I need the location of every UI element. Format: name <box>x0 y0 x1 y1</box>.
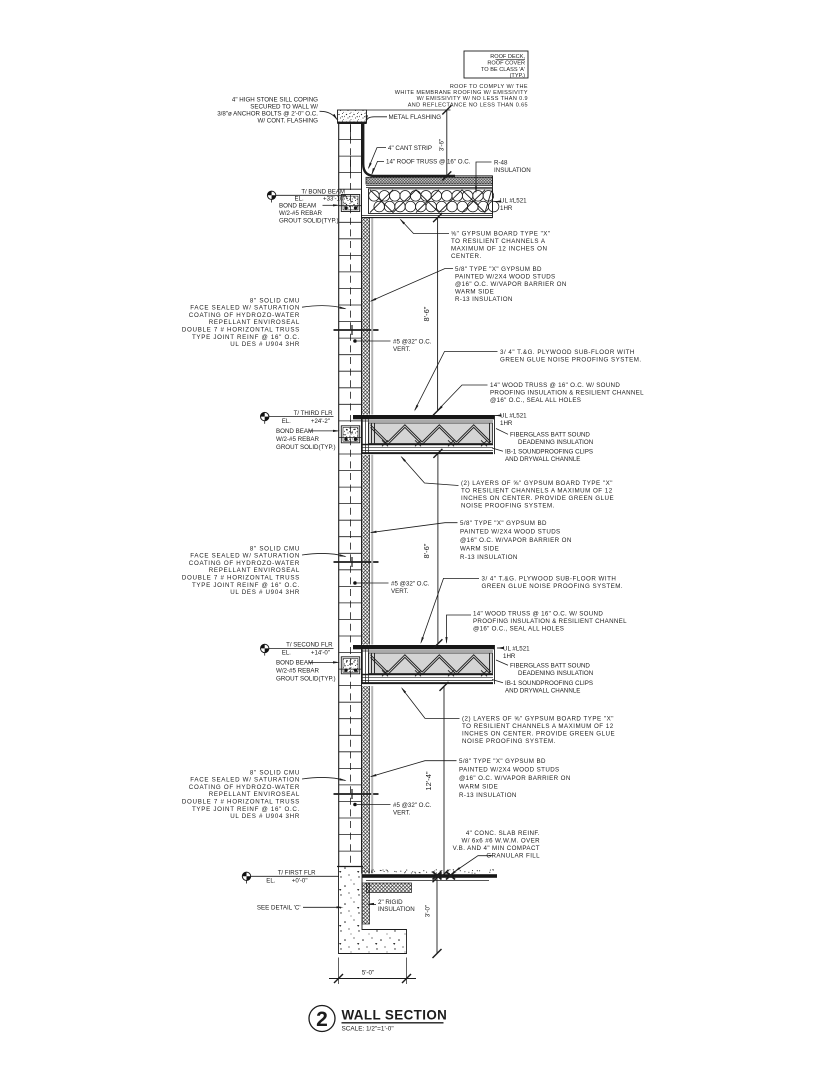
svg-text:WHITE MEMBRANE ROOFING W/ EMIS: WHITE MEMBRANE ROOFING W/ EMISSIVITY <box>395 90 528 96</box>
svg-text:DOUBLE 7 # HORIZONTAL TRUSS: DOUBLE 7 # HORIZONTAL TRUSS <box>182 799 300 806</box>
svg-text:@16" O.C., SEAL ALL HOLES: @16" O.C., SEAL ALL HOLES <box>473 625 564 632</box>
svg-text:ROOF COVER: ROOF COVER <box>487 61 525 67</box>
svg-text:DOUBLE 7 # HORIZONTAL TRUSS: DOUBLE 7 # HORIZONTAL TRUSS <box>182 575 300 582</box>
svg-text:FIBERGLASS BATT SOUND: FIBERGLASS BATT SOUND <box>510 663 590 670</box>
svg-text:AND DRYWALL CHANNLE: AND DRYWALL CHANNLE <box>505 456 580 463</box>
svg-text:5/8" TYPE "X" GYPSUM BD: 5/8" TYPE "X" GYPSUM BD <box>459 758 546 765</box>
svg-text:4" HIGH STONE SILL COPING: 4" HIGH STONE SILL COPING <box>232 97 318 104</box>
svg-text:#5 @32" O.C.: #5 @32" O.C. <box>391 580 430 587</box>
svg-text:VERT.: VERT. <box>393 346 411 353</box>
svg-text:GRANULAR FILL: GRANULAR FILL <box>486 853 540 860</box>
svg-text:IB-1 SOUNDPROOFING CLIPS: IB-1 SOUNDPROOFING CLIPS <box>505 680 593 687</box>
svg-text:T/ FIRST FLR: T/ FIRST FLR <box>278 870 316 877</box>
svg-text:WARM SIDE: WARM SIDE <box>460 546 499 553</box>
svg-text:UL #L521: UL #L521 <box>500 413 527 420</box>
svg-text:@16" O.C. W/VAPOR BARRIER ON: @16" O.C. W/VAPOR BARRIER ON <box>460 537 572 544</box>
svg-text:REPELLANT ENVIROSEAL: REPELLANT ENVIROSEAL <box>209 791 300 798</box>
svg-text:AND REFLECTANCE NO LESS THAN 0: AND REFLECTANCE NO LESS THAN 0.65 <box>408 102 528 108</box>
svg-text:FIBERGLASS BATT SOUND: FIBERGLASS BATT SOUND <box>510 432 590 439</box>
svg-text:14" WOOD TRUSS @ 16" O.C. W/ S: 14" WOOD TRUSS @ 16" O.C. W/ SOUND <box>473 610 603 617</box>
svg-text:BOND BEAM: BOND BEAM <box>276 428 313 435</box>
svg-text:(TYP.): (TYP.) <box>510 73 526 79</box>
svg-text:CENTER.: CENTER. <box>451 253 482 260</box>
svg-text:UL DES # U904 3HR: UL DES # U904 3HR <box>230 813 300 820</box>
svg-text:NOISE PROOFING SYSTEM.: NOISE PROOFING SYSTEM. <box>461 503 555 510</box>
svg-text:VERT.: VERT. <box>393 809 411 816</box>
svg-text:INSULATION: INSULATION <box>494 167 531 174</box>
svg-text:TYPE JOINT REINF @ 16" O.C.: TYPE JOINT REINF @ 16" O.C. <box>192 334 300 341</box>
svg-text:EL.: EL. <box>282 418 291 425</box>
svg-text:W/2-#5 REBAR: W/2-#5 REBAR <box>276 667 320 674</box>
svg-text:3/8"ø ANCHOR BOLTS @ 2'-0" O.C: 3/8"ø ANCHOR BOLTS @ 2'-0" O.C. <box>217 111 318 118</box>
svg-text:#5 @32" O.C.: #5 @32" O.C. <box>393 338 432 345</box>
svg-text:3'-0": 3'-0" <box>425 905 432 918</box>
svg-text:PROOFING INSULATION & RESILIEN: PROOFING INSULATION & RESILIENT CHANNEL <box>473 618 627 625</box>
svg-text:REPELLANT ENVIROSEAL: REPELLANT ENVIROSEAL <box>209 567 300 574</box>
svg-text:8" SOLID CMU: 8" SOLID CMU <box>250 769 300 776</box>
svg-text:AND DRYWALL CHANNLE: AND DRYWALL CHANNLE <box>505 688 580 695</box>
svg-text:PAINTED W/2X4 WOOD STUDS: PAINTED W/2X4 WOOD STUDS <box>459 767 560 774</box>
svg-text:TO RESILIENT CHANNELS A: TO RESILIENT CHANNELS A <box>451 238 546 245</box>
svg-text:SCALE: 1/2"=1'-0": SCALE: 1/2"=1'-0" <box>342 1026 394 1033</box>
svg-text:12'-4": 12'-4" <box>424 771 433 790</box>
svg-text:WARM SIDE: WARM SIDE <box>459 784 498 791</box>
svg-text:2: 2 <box>316 1008 328 1031</box>
svg-text:W/ EMISSIVITY W/ NO LESS THAN: W/ EMISSIVITY W/ NO LESS THAN 0.9 <box>417 96 528 102</box>
svg-text:8'-6": 8'-6" <box>422 306 431 321</box>
svg-text:UL DES # U904 3HR: UL DES # U904 3HR <box>230 589 300 596</box>
svg-text:GROUT SOLID(TYP.): GROUT SOLID(TYP.) <box>279 217 339 224</box>
svg-text:VERT.: VERT. <box>391 588 409 595</box>
svg-text:TYPE JOINT REINF @ 16" O.C.: TYPE JOINT REINF @ 16" O.C. <box>192 806 300 813</box>
svg-text:WALL SECTION: WALL SECTION <box>342 1008 448 1023</box>
svg-text:8" SOLID CMU: 8" SOLID CMU <box>250 297 300 304</box>
svg-text:BOND BEAM: BOND BEAM <box>279 203 316 210</box>
svg-text:3'-6": 3'-6" <box>439 139 446 152</box>
svg-text:DEADENING INSULATION: DEADENING INSULATION <box>518 670 593 677</box>
svg-text:8'-6": 8'-6" <box>422 543 431 558</box>
svg-text:EL.: EL. <box>282 650 291 657</box>
svg-text:UL #L521: UL #L521 <box>503 646 530 653</box>
svg-text:GREEN GLUE NOISE PROOFING SYST: GREEN GLUE NOISE PROOFING SYSTEM. <box>482 583 624 590</box>
svg-text:TO RESILIENT CHANNELS A MAXIMU: TO RESILIENT CHANNELS A MAXIMUM OF 12 <box>462 723 614 730</box>
svg-text:T/ THIRD FLR: T/ THIRD FLR <box>294 410 333 417</box>
svg-text:4" CANT STRIP: 4" CANT STRIP <box>388 145 432 152</box>
svg-text:DEADENING INSULATION: DEADENING INSULATION <box>518 439 593 446</box>
svg-text:NOISE PROOFING SYSTEM.: NOISE PROOFING SYSTEM. <box>462 738 556 745</box>
svg-text:3/ 4" T.&G. PLYWOOD SUB-FLOOR: 3/ 4" T.&G. PLYWOOD SUB-FLOOR WITH <box>482 576 617 583</box>
svg-text:COATING OF HYDROZO-WATER: COATING OF HYDROZO-WATER <box>189 560 300 567</box>
svg-text:BOND BEAM: BOND BEAM <box>276 660 313 667</box>
svg-text:@16" O.C., SEAL ALL HOLES: @16" O.C., SEAL ALL HOLES <box>490 397 581 404</box>
svg-text:W/2-#5 REBAR: W/2-#5 REBAR <box>276 436 320 443</box>
svg-text:FACE SEALED W/ SATURATION: FACE SEALED W/ SATURATION <box>190 777 300 784</box>
svg-text:+0'-0": +0'-0" <box>292 878 308 885</box>
svg-text:IB-1 SOUNDPROOFING CLIPS: IB-1 SOUNDPROOFING CLIPS <box>505 449 593 456</box>
svg-text:W/ 6x6 #6 W.W.M. OVER: W/ 6x6 #6 W.W.M. OVER <box>461 838 540 845</box>
svg-text:FACE SEALED W/ SATURATION: FACE SEALED W/ SATURATION <box>190 553 300 560</box>
svg-text:5/8" TYPE "X" GYPSUM BD: 5/8" TYPE "X" GYPSUM BD <box>455 266 542 273</box>
svg-text:TYPE JOINT REINF @ 16" O.C.: TYPE JOINT REINF @ 16" O.C. <box>192 582 300 589</box>
svg-text:+24'-2": +24'-2" <box>311 418 330 425</box>
svg-text:8" SOLID CMU: 8" SOLID CMU <box>250 545 300 552</box>
svg-text:5/8" TYPE "X" GYPSUM BD: 5/8" TYPE "X" GYPSUM BD <box>460 520 547 527</box>
svg-text:T/ SECOND FLR: T/ SECOND FLR <box>286 642 333 649</box>
svg-text:+14'-0": +14'-0" <box>311 650 330 657</box>
svg-text:⅝" GYPSUM BOARD TYPE "X": ⅝" GYPSUM BOARD TYPE "X" <box>451 231 551 238</box>
svg-text:WARM SIDE: WARM SIDE <box>455 289 494 296</box>
svg-text:GREEN GLUE NOISE PROOFING SYST: GREEN GLUE NOISE PROOFING SYSTEM. <box>500 356 642 363</box>
svg-text:+33'-10": +33'-10" <box>323 196 345 203</box>
svg-text:4" CONC. SLAB REINF.: 4" CONC. SLAB REINF. <box>466 830 540 837</box>
svg-text:PAINTED W/2X4 WOOD STUDS: PAINTED W/2X4 WOOD STUDS <box>455 273 556 280</box>
svg-text:UL #L521: UL #L521 <box>500 197 527 204</box>
svg-text:(2) LAYERS OF ⅝" GYPSUM BOARD: (2) LAYERS OF ⅝" GYPSUM BOARD TYPE "X" <box>462 716 614 723</box>
svg-text:(2) LAYERS OF ⅝" GYPSUM BOARD: (2) LAYERS OF ⅝" GYPSUM BOARD TYPE "X" <box>461 480 613 487</box>
svg-text:INSULATION: INSULATION <box>378 906 415 913</box>
svg-text:UL DES # U904 3HR: UL DES # U904 3HR <box>230 341 300 348</box>
svg-text:COATING OF HYDROZO-WATER: COATING OF HYDROZO-WATER <box>189 312 300 319</box>
svg-text:MAXIMUM OF 12 INCHES ON: MAXIMUM OF 12 INCHES ON <box>451 246 547 253</box>
svg-text:V.B. AND 4" MIN COMPACT: V.B. AND 4" MIN COMPACT <box>453 845 540 852</box>
svg-text:REPELLANT ENVIROSEAL: REPELLANT ENVIROSEAL <box>209 319 300 326</box>
svg-text:2" RIGID: 2" RIGID <box>378 899 403 906</box>
svg-text:TO RESILIENT CHANNELS A MAXIMU: TO RESILIENT CHANNELS A MAXIMUM OF 12 <box>461 488 613 495</box>
svg-text:1HR: 1HR <box>500 205 513 212</box>
svg-text:PAINTED W/2X4 WOOD STUDS: PAINTED W/2X4 WOOD STUDS <box>460 529 561 536</box>
svg-text:GROUT SOLID(TYP.): GROUT SOLID(TYP.) <box>276 444 336 451</box>
svg-text:1HR: 1HR <box>500 420 513 427</box>
svg-text:#5 @32" O.C.: #5 @32" O.C. <box>393 802 432 809</box>
svg-text:GROUT SOLID(TYP.): GROUT SOLID(TYP.) <box>276 675 336 682</box>
svg-text:METAL FLASHING: METAL FLASHING <box>389 114 442 121</box>
svg-text:INCHES ON CENTER. PROVIDE GREE: INCHES ON CENTER. PROVIDE GREEN GLUE <box>461 495 614 502</box>
svg-text:14" WOOD TRUSS @ 16" O.C. W/ S: 14" WOOD TRUSS @ 16" O.C. W/ SOUND <box>490 382 620 389</box>
svg-text:ROOF TO COMPLY W/ THE: ROOF TO COMPLY W/ THE <box>450 84 528 90</box>
svg-text:SEE DETAIL 'C': SEE DETAIL 'C' <box>257 905 301 912</box>
svg-text:R-13 INSULATION: R-13 INSULATION <box>455 296 513 303</box>
svg-text:W/2-#5 REBAR: W/2-#5 REBAR <box>279 210 323 217</box>
svg-text:DOUBLE 7 # HORIZONTAL TRUSS: DOUBLE 7 # HORIZONTAL TRUSS <box>182 327 300 334</box>
svg-text:COATING OF HYDROZO-WATER: COATING OF HYDROZO-WATER <box>189 784 300 791</box>
svg-text:@16" O.C. W/VAPOR BARRIER ON: @16" O.C. W/VAPOR BARRIER ON <box>459 775 571 782</box>
svg-text:SECURED TO WALL W/: SECURED TO WALL W/ <box>250 104 318 111</box>
svg-text:INCHES ON CENTER. PROVIDE GREE: INCHES ON CENTER. PROVIDE GREEN GLUE <box>462 731 615 738</box>
svg-text:R-13 INSULATION: R-13 INSULATION <box>460 554 518 561</box>
svg-text:5'-0": 5'-0" <box>362 970 375 977</box>
svg-text:R-13 INSULATION: R-13 INSULATION <box>459 792 517 799</box>
svg-text:1HR: 1HR <box>503 653 516 660</box>
svg-text:@16" O.C. W/VAPOR BARRIER ON: @16" O.C. W/VAPOR BARRIER ON <box>455 281 567 288</box>
svg-text:3/ 4" T.&G. PLYWOOD SUB-FLOOR: 3/ 4" T.&G. PLYWOOD SUB-FLOOR WITH <box>500 349 635 356</box>
svg-text:T/ BOND BEAM: T/ BOND BEAM <box>301 188 345 195</box>
svg-text:FACE SEALED W/ SATURATION: FACE SEALED W/ SATURATION <box>190 305 300 312</box>
svg-text:W/ CONT. FLASHING: W/ CONT. FLASHING <box>257 118 318 125</box>
svg-text:R-48: R-48 <box>494 159 508 166</box>
svg-text:PROOFING INSULATION & RESILIEN: PROOFING INSULATION & RESILIENT CHANNEL <box>490 390 644 397</box>
svg-text:EL.: EL. <box>266 878 275 885</box>
svg-text:14" ROOF TRUSS @ 16" O.C.: 14" ROOF TRUSS @ 16" O.C. <box>386 159 471 166</box>
